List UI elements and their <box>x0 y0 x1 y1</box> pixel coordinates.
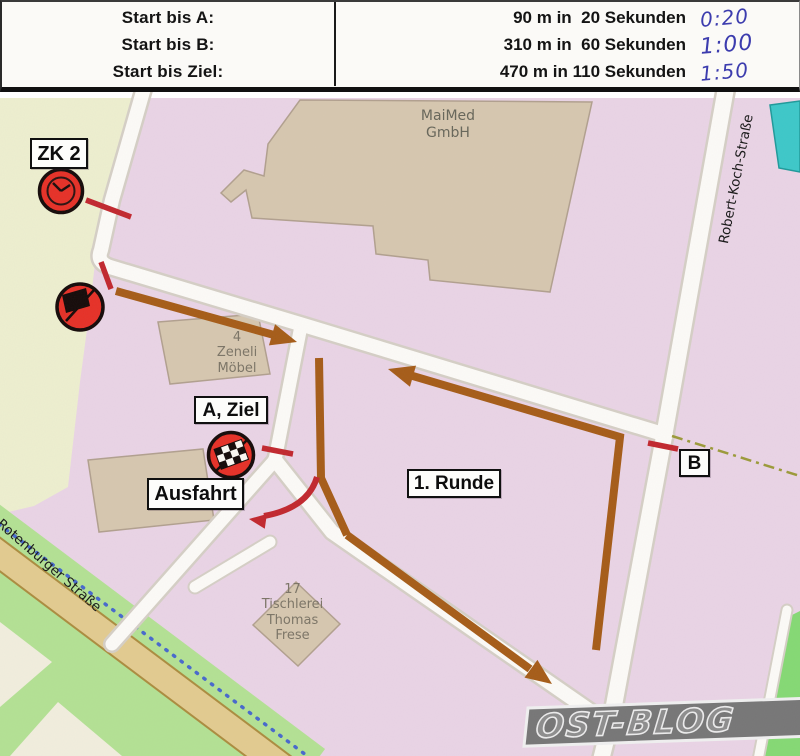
place-line: 17 <box>240 582 345 597</box>
a-ziel-label: A, Ziel <box>194 396 268 424</box>
table-row: Start bis A: 90 m in 20 Sekunden 0:20 <box>2 5 799 32</box>
maimed-place-label: MaiMed GmbH <box>398 108 498 141</box>
segment-distance-time: 90 m in 20 Sekunden <box>342 8 686 28</box>
b-label: B <box>679 449 710 477</box>
segment-label: Start bis B: <box>2 35 334 55</box>
scan-noise <box>0 98 800 756</box>
map-canvas: OST-BLOG <box>0 92 800 756</box>
place-line: Möbel <box>187 361 287 376</box>
place-line: GmbH <box>398 125 498 142</box>
segment-label: Start bis A: <box>2 8 334 28</box>
place-line: MaiMed <box>398 108 498 125</box>
handwritten-time: 1:50 <box>699 54 791 86</box>
zk2-label: ZK 2 <box>30 138 88 169</box>
segment-distance-time: 310 m in 60 Sekunden <box>342 35 686 55</box>
route-map: OST-BLOG ZK 2 A, Ziel Ausfahrt 1. Runde … <box>0 92 800 756</box>
ausfahrt-label: Ausfahrt <box>147 478 244 510</box>
table-row: Start bis B: 310 m in 60 Sekunden 1:00 <box>2 32 799 59</box>
place-line: Thomas <box>240 613 345 628</box>
tischlerei-place-label: 17 Tischlerei Thomas Frese <box>240 582 345 643</box>
place-line: 4 <box>187 330 287 345</box>
zeneli-place-label: 4 Zeneli Möbel <box>187 330 287 376</box>
first-lap-label: 1. Runde <box>407 469 501 498</box>
timing-table: Start bis A: 90 m in 20 Sekunden 0:20 St… <box>0 0 800 92</box>
place-line: Tischlerei <box>240 597 345 612</box>
place-line: Frese <box>240 628 345 643</box>
segment-distance-time: 470 m in 110 Sekunden <box>342 62 686 82</box>
table-row: Start bis Ziel: 470 m in 110 Sekunden 1:… <box>2 59 799 86</box>
segment-label: Start bis Ziel: <box>2 62 334 82</box>
scanned-rally-roadbook-page: Start bis A: 90 m in 20 Sekunden 0:20 St… <box>0 0 800 756</box>
place-line: Zeneli <box>187 345 287 360</box>
